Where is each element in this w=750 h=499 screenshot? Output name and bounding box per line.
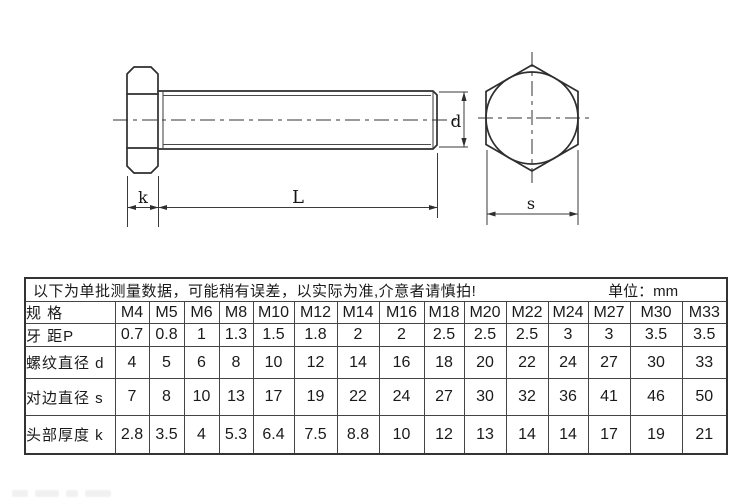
- pitch-cell: 0.8: [149, 324, 184, 347]
- head-thickness-cell: 2.8: [115, 416, 149, 455]
- pitch-cell: 1: [184, 324, 219, 347]
- thread-diameter-cell: 22: [506, 347, 548, 379]
- thread-diameter-cell: 30: [630, 347, 682, 379]
- pitch-cell: 0.7: [115, 324, 149, 347]
- across-flats-cell: 36: [548, 379, 588, 416]
- spec-cell: M22: [506, 302, 548, 324]
- head-thickness-cell: 6.4: [253, 416, 294, 455]
- pitch-cell: 2.5: [464, 324, 506, 347]
- across-flats-row: 对边直径 s 7 8 10 13 17 19 22 24 27 30 32 36…: [25, 379, 727, 416]
- head-thickness-cell: 3.5: [149, 416, 184, 455]
- head-thickness-cell: 14: [506, 416, 548, 455]
- pitch-row: 牙 距P 0.7 0.8 1 1.3 1.5 1.8 2 2 2.5 2.5 2…: [25, 324, 727, 347]
- note-row: 以下为单批测量数据，可能稍有误差，以实际为准,介意者请慎拍! 单位：mm: [25, 278, 727, 302]
- pitch-cell: 2.5: [506, 324, 548, 347]
- pitch-cell: 3: [548, 324, 588, 347]
- row-label-thread-diameter: 螺纹直径 d: [25, 347, 115, 379]
- across-flats-cell: 7: [115, 379, 149, 416]
- pitch-cell: 2: [337, 324, 379, 347]
- thread-diameter-cell: 8: [219, 347, 253, 379]
- thread-diameter-cell: 18: [424, 347, 464, 379]
- spec-cell: M20: [464, 302, 506, 324]
- spec-cell: M12: [294, 302, 337, 324]
- dim-label-k: k: [138, 188, 148, 207]
- row-label-pitch: 牙 距P: [25, 324, 115, 347]
- spec-cell: M5: [149, 302, 184, 324]
- thread-diameter-cell: 16: [379, 347, 424, 379]
- spec-header-row: 规 格 M4 M5 M6 M8 M10 M12 M14 M16 M18 M20 …: [25, 302, 727, 324]
- spec-cell: M10: [253, 302, 294, 324]
- bolt-end-view: [478, 52, 591, 186]
- spec-cell: M8: [219, 302, 253, 324]
- pitch-cell: 3.5: [630, 324, 682, 347]
- head-thickness-cell: 19: [630, 416, 682, 455]
- thread-diameter-cell: 24: [548, 347, 588, 379]
- pitch-cell: 2: [379, 324, 424, 347]
- head-thickness-cell: 7.5: [294, 416, 337, 455]
- across-flats-cell: 13: [219, 379, 253, 416]
- thread-diameter-cell: 14: [337, 347, 379, 379]
- row-label-spec: 规 格: [25, 302, 115, 324]
- across-flats-cell: 17: [253, 379, 294, 416]
- unit-label: 单位：mm: [608, 280, 726, 301]
- thread-diameter-cell: 33: [682, 347, 727, 379]
- pitch-cell: 1.3: [219, 324, 253, 347]
- dim-label-s: s: [527, 194, 535, 213]
- head-thickness-cell: 14: [548, 416, 588, 455]
- bolt-technical-drawing: d k L s: [0, 0, 750, 262]
- across-flats-cell: 24: [379, 379, 424, 416]
- dim-label-l: L: [292, 187, 304, 208]
- across-flats-cell: 41: [588, 379, 630, 416]
- thread-diameter-cell: 12: [294, 347, 337, 379]
- spec-cell: M14: [337, 302, 379, 324]
- across-flats-cell: 30: [464, 379, 506, 416]
- head-thickness-cell: 5.3: [219, 416, 253, 455]
- measurement-note: 以下为单批测量数据，可能稍有误差，以实际为准,介意者请慎拍!: [26, 280, 476, 301]
- row-label-across-flats: 对边直径 s: [25, 379, 115, 416]
- spec-cell: M18: [424, 302, 464, 324]
- across-flats-cell: 19: [294, 379, 337, 416]
- head-thickness-row: 头部厚度 k 2.8 3.5 4 5.3 6.4 7.5 8.8 10 12 1…: [25, 416, 727, 455]
- thread-diameter-cell: 20: [464, 347, 506, 379]
- across-flats-cell: 10: [184, 379, 219, 416]
- bolt-head-facet-lines: [127, 94, 158, 148]
- head-thickness-cell: 12: [424, 416, 464, 455]
- across-flats-cell: 50: [682, 379, 727, 416]
- row-label-head-thickness: 头部厚度 k: [25, 416, 115, 455]
- across-flats-cell: 46: [630, 379, 682, 416]
- thread-diameter-cell: 4: [115, 347, 149, 379]
- pitch-cell: 1.8: [294, 324, 337, 347]
- watermark-remnant: [12, 490, 111, 498]
- spec-cell: M33: [682, 302, 727, 324]
- across-flats-cell: 8: [149, 379, 184, 416]
- thread-diameter-cell: 5: [149, 347, 184, 379]
- thread-diameter-cell: 6: [184, 347, 219, 379]
- spec-cell: M4: [115, 302, 149, 324]
- head-thickness-cell: 8.8: [337, 416, 379, 455]
- across-flats-cell: 32: [506, 379, 548, 416]
- pitch-cell: 3: [588, 324, 630, 347]
- spec-table: 以下为单批测量数据，可能稍有误差，以实际为准,介意者请慎拍! 单位：mm 规 格…: [24, 277, 728, 455]
- head-thickness-cell: 10: [379, 416, 424, 455]
- spec-cell: M16: [379, 302, 424, 324]
- across-flats-cell: 27: [424, 379, 464, 416]
- head-thickness-cell: 21: [682, 416, 727, 455]
- spec-cell: M27: [588, 302, 630, 324]
- spec-cell: M30: [630, 302, 682, 324]
- pitch-cell: 2.5: [424, 324, 464, 347]
- head-thickness-cell: 13: [464, 416, 506, 455]
- spec-cell: M24: [548, 302, 588, 324]
- head-thickness-cell: 17: [588, 416, 630, 455]
- thread-diameter-cell: 10: [253, 347, 294, 379]
- pitch-cell: 1.5: [253, 324, 294, 347]
- dimension-k-l: k L: [128, 153, 438, 227]
- dim-label-d: d: [451, 112, 462, 132]
- bolt-side-view: [113, 67, 458, 173]
- pitch-cell: 3.5: [682, 324, 727, 347]
- thread-diameter-cell: 27: [588, 347, 630, 379]
- spec-cell: M6: [184, 302, 219, 324]
- across-flats-cell: 22: [337, 379, 379, 416]
- thread-diameter-row: 螺纹直径 d 4 5 6 8 10 12 14 16 18 20 22 24 2…: [25, 347, 727, 379]
- head-thickness-cell: 4: [184, 416, 219, 455]
